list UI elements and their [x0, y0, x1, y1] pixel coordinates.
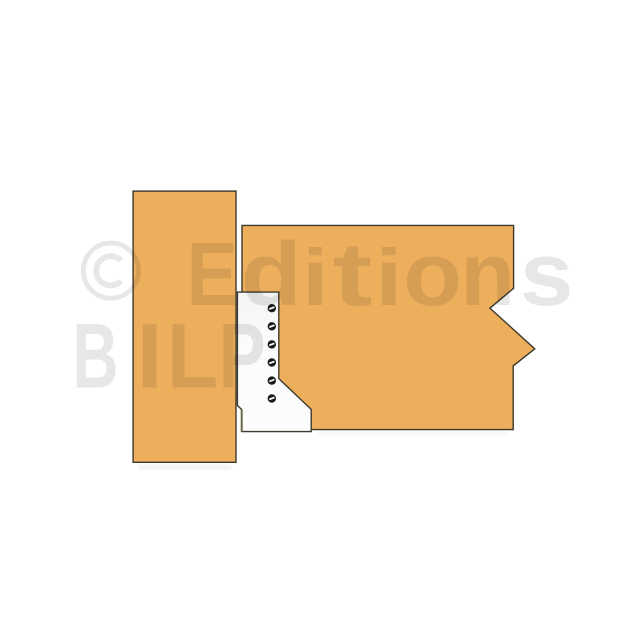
svg-text:L: L — [167, 304, 218, 407]
svg-text:i: i — [375, 233, 403, 322]
svg-text:o: o — [403, 224, 462, 324]
svg-text:i: i — [302, 233, 328, 323]
svg-text:P: P — [219, 306, 266, 408]
svg-text:t: t — [332, 224, 372, 324]
svg-text:I: I — [136, 305, 163, 407]
svg-text:B: B — [73, 305, 119, 407]
svg-text:n: n — [460, 225, 515, 325]
svg-text:s: s — [520, 223, 574, 324]
